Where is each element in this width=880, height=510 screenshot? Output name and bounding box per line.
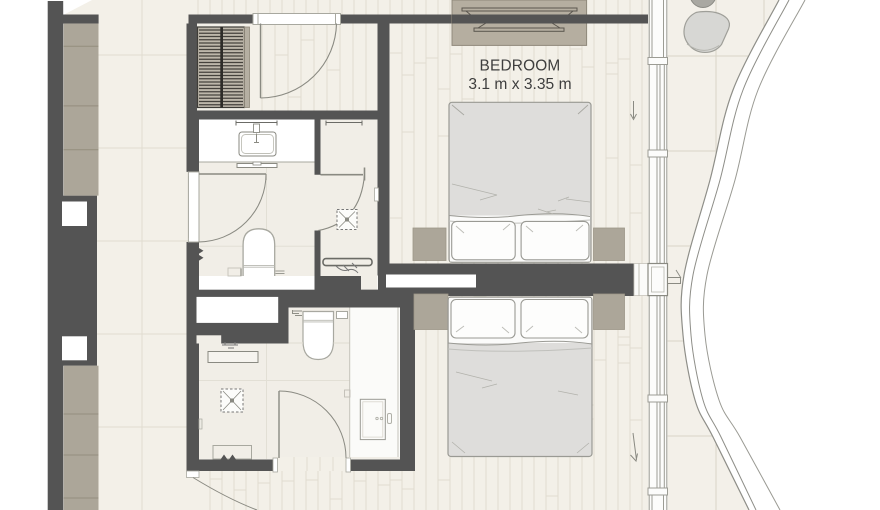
svg-text:BEDROOM: BEDROOM bbox=[480, 57, 561, 74]
svg-text:3.1 m x 3.35 m: 3.1 m x 3.35 m bbox=[468, 76, 571, 93]
